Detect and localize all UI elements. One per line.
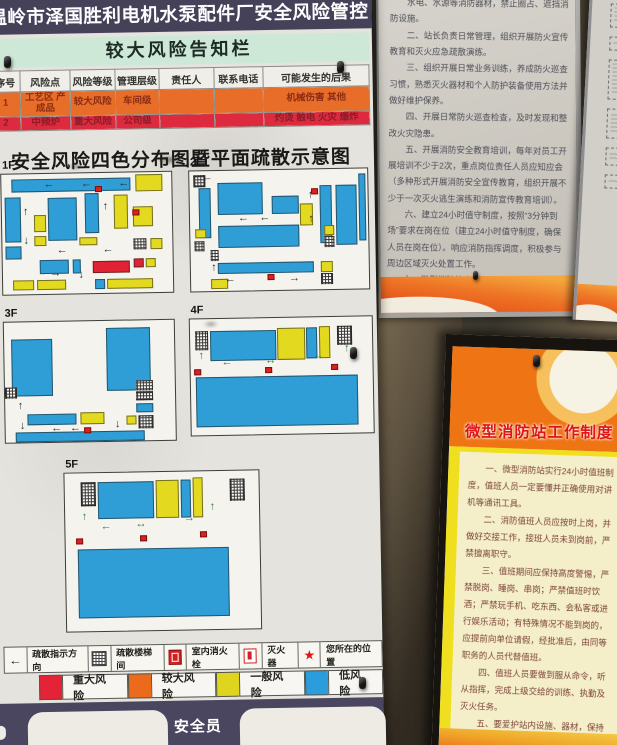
floor-label: 3F (5, 305, 175, 320)
floor-plan-area: ↑←←↓↓ (3, 319, 177, 444)
general-risk-area (150, 238, 162, 249)
evacuation-arrow: ← (100, 521, 111, 532)
general-risk-area (80, 412, 104, 424)
table-cell (214, 113, 264, 128)
legend-icon-cell (240, 643, 263, 668)
exit-marker (84, 427, 91, 433)
column-header: 风险等级 (69, 69, 115, 91)
floor-plan-3F: 3F↑←←↓↓ (3, 305, 177, 444)
stairwell (195, 331, 208, 351)
general-risk-area (37, 279, 66, 290)
low-risk-area (98, 482, 155, 519)
document-paragraph: 三、组织开展日常业务训练，养成防火巡查习惯，熟悉灭火器材和个人防护装备使用方法并… (389, 59, 569, 110)
evacuation-arrow: ↑ (344, 344, 350, 355)
document-paragraph: 二、站长负责日常管理，组织开展防火宣传教育和灭火应急疏散演练。 (389, 27, 568, 62)
poster-paragraph: 四、值班人员要做到服从命令，听从指挥，完成上级交给的训练、执勤及灭火任务。 (460, 664, 613, 720)
table-cell: 车间级 (115, 89, 159, 115)
major-risk-area (93, 260, 131, 273)
general-risk-area (136, 174, 163, 191)
evacuation-arrow: ← (51, 423, 62, 434)
poster-paragraph: 一、微型消防站实行24小时值班制度，值班人员一定要懂并正确使用对讲机等通讯工具。 (467, 460, 617, 516)
floor-plan-area: ←↔→↑↑ (189, 315, 375, 436)
column-header: 可能发生的后果 (263, 65, 370, 88)
general-risk-area (145, 258, 155, 267)
evacuation-arrow: ↓ (115, 420, 121, 431)
push-pin (473, 271, 478, 280)
flowchart-box (609, 36, 617, 51)
dirt-smudge (156, 155, 184, 165)
low-risk-area (77, 547, 230, 619)
low-risk-area (219, 225, 299, 248)
floor-plan-area: ←←←↑↓↑←←→↓ (0, 171, 174, 296)
evacuation-arrow: ← (238, 213, 249, 224)
low-risk-area (358, 173, 366, 240)
floor-plan-5F: 5F←↔→↑↑ (63, 455, 262, 632)
table-cell: 工艺区 产成品 (21, 91, 71, 117)
flame-decoration (576, 284, 617, 324)
exit-marker (140, 536, 147, 542)
document-text: 水电、水源等消防器材，禁止圈占、遮挡消防设施。二、站长负责日常管理，组织开展防火… (377, 0, 578, 306)
exit-marker (311, 188, 318, 194)
stairs-icon (92, 651, 107, 666)
dirt-smudge (203, 320, 219, 328)
evacuation-arrow: ↑ (18, 401, 24, 412)
flowchart-box (605, 147, 617, 166)
floor-plan-1F: 1F←←←↑↓↑←←→↓ (0, 157, 174, 296)
micro-fire-station-poster: 微型消防站工作制度 一、微型消防站实行24小时值班制度，值班人员一定要懂并正确使… (431, 334, 617, 745)
evacuation-arrow: ↓ (78, 270, 84, 281)
evacuation-arrow: → (50, 268, 61, 279)
table-cell (214, 88, 264, 114)
evacuation-arrow: ← (43, 179, 54, 190)
stairwell (80, 483, 96, 507)
low-risk-area (218, 182, 263, 215)
evacuation-arrow: ↓ (20, 421, 26, 432)
stairwell (321, 273, 334, 284)
flame-decoration (380, 275, 577, 313)
risk-color-swatch (305, 670, 328, 695)
push-pin (4, 56, 11, 68)
table-cell: 机械伤害 其他 (263, 86, 370, 113)
poster-title: 温岭市泽国胜利电机水泵配件厂安全风险管控 (0, 0, 372, 35)
evacuation-arrow: ↔ (265, 355, 276, 366)
location-star-icon: ★ (303, 648, 315, 661)
low-risk-area (47, 197, 77, 241)
risk-color-swatch (128, 673, 151, 698)
evacuation-arrow: → (184, 513, 195, 524)
risk-level-label: 重大风险 (62, 674, 128, 700)
exit-marker (265, 367, 272, 373)
stairwell (133, 238, 147, 249)
risk-level-label: 低风险 (328, 669, 383, 695)
table-cell: 公司级 (116, 114, 160, 129)
floor-label: 5F (65, 455, 259, 470)
fire-station-duty-document: 水电、水源等消防器材，禁止圈占、遮挡消防设施。二、站长负责日常管理，组织开展防火… (376, 0, 583, 318)
general-risk-area (35, 236, 47, 246)
exit-marker (200, 531, 207, 537)
evacuation-arrow: ← (221, 357, 232, 368)
legend-label: 室内消火栓 (187, 644, 241, 670)
push-pin (350, 347, 357, 359)
risk-level-label: 一般风险 (239, 671, 305, 697)
micro-station-title: 微型消防站工作制度 (452, 420, 617, 444)
table-cell: 重大风险 (70, 115, 116, 130)
flowchart (584, 0, 617, 190)
table-cell: 灼烫 触电 火灾 爆炸 (263, 111, 369, 127)
risk-color-swatch (39, 675, 62, 700)
evacuation-arrow: ← (81, 178, 92, 189)
evacuation-arrow: ↑ (198, 351, 204, 362)
low-risk-area (95, 279, 105, 290)
legend-icon-cell (88, 646, 111, 671)
floor-plan-area: ←↔→↑↑ (63, 469, 262, 632)
exit-marker (133, 209, 140, 215)
low-risk-area (196, 375, 359, 428)
general-risk-area (193, 478, 203, 518)
extinguisher-icon (244, 648, 257, 663)
legend-label: 您所在的位置 (321, 641, 382, 667)
evacuation-arrow: ← (259, 213, 270, 224)
low-risk-area (136, 403, 153, 413)
legend-label: 灭火器 (262, 643, 299, 669)
evacuation-arrow: ↑ (82, 512, 88, 523)
table-cell: 较大风险 (70, 90, 116, 116)
evacuation-arrow: ← (201, 173, 212, 184)
exit-marker (331, 364, 338, 370)
notice-board-title: 较大风险告知栏 (0, 32, 369, 68)
poster-paragraph: 二、消防值班人员应按时上岗，并做好交接工作，接班人员未到岗前，严禁擅离职守。 (465, 511, 617, 567)
push-pin (359, 677, 366, 689)
risk-color-swatch (216, 672, 239, 697)
general-risk-area (34, 215, 46, 232)
evacuation-arrow: ↓ (23, 236, 29, 247)
floor-plan-area: ←←←↑↑←→↑ (188, 167, 370, 292)
name-slot (240, 706, 387, 745)
evacuation-arrow: ← (225, 274, 236, 285)
poster-body: 一、微型消防站实行24小时值班制度，值班人员一定要懂并正确使用对讲机等通讯工具。… (439, 446, 617, 745)
column-header: 责任人 (158, 68, 213, 90)
evacuation-arrow: → (312, 351, 323, 362)
evacuation-arrow: ↔ (135, 519, 146, 530)
push-pin (533, 355, 540, 367)
evacuation-arrow: ← (118, 178, 129, 189)
safety-risk-poster: 温岭市泽国胜利电机水泵配件厂安全风险管控 较大风险告知栏 序号风险点风险等级管理… (0, 0, 385, 745)
document-paragraph: 四、开展日常防火巡查检查，及时发现和整改火灾隐患。 (388, 108, 567, 143)
table-cell: 1 (0, 92, 21, 117)
low-risk-area (271, 196, 298, 214)
floor-label: 1F (2, 157, 172, 172)
general-risk-area (79, 237, 98, 246)
low-risk-area (11, 339, 53, 397)
name-slot (28, 710, 169, 745)
photo-of-safety-notice-wall: 温岭市泽国胜利电机水泵配件厂安全风险管控 较大风险告知栏 序号风险点风险等级管理… (0, 0, 617, 745)
legend-label: 疏散楼梯间 (111, 645, 165, 671)
evacuation-arrow: ↑ (23, 207, 29, 218)
general-risk-area (107, 278, 153, 290)
stairwell (210, 250, 219, 261)
legend-icon-cell: ★ (298, 642, 321, 667)
flowchart-box (606, 108, 617, 139)
low-risk-area (5, 197, 21, 243)
stairwell (229, 478, 245, 500)
evacuation-arrow: ↑ (211, 263, 217, 274)
table-cell (159, 89, 214, 115)
low-risk-area (335, 184, 357, 244)
name-slot (0, 726, 6, 740)
stairwell (138, 415, 154, 428)
poster-footer: 安全员 (0, 697, 385, 745)
document-paragraph: 五、开展消防安全教育培训，每年对员工开展培训不少于2次，重点岗位责任人员应知应会… (388, 141, 568, 208)
legend-icon-cell: ← (4, 647, 27, 672)
column-header: 序号 (0, 71, 21, 93)
flowchart-box (604, 174, 617, 189)
stairwell (5, 387, 17, 398)
evacuation-arrow: ← (70, 423, 81, 434)
document-paragraph: 六、建立24小时值守制度，按照“3分钟到场”要求在岗在位（建立24小时值守制度，… (387, 206, 567, 273)
floor-label: 4F (190, 301, 372, 316)
legend-label: 疏散指示方向 (27, 646, 89, 672)
floor-label: 2F (190, 153, 368, 168)
general-risk-area (156, 480, 180, 518)
general-risk-area (114, 194, 128, 229)
general-risk-area (126, 415, 136, 425)
document-paragraph: 水电、水源等消防器材，禁止圈占、遮挡消防设施。 (390, 0, 569, 29)
stairwell (136, 391, 153, 401)
general-risk-area (321, 261, 334, 272)
floor-plan-2F: 2F←←←↑↑←→↑ (188, 153, 370, 292)
arrow-left-icon: ← (9, 652, 22, 667)
poster-paragraph: 三、值班期间应保持高度警惕，严禁脱岗、睡岗、串岗；严禁值班时饮酒；严禁玩手机、吃… (462, 562, 616, 669)
safety-officer-label: 安全员 (174, 715, 222, 737)
low-risk-area (11, 177, 130, 192)
flowchart-box (607, 59, 617, 100)
push-pin (337, 61, 344, 73)
exit-marker (76, 538, 83, 544)
column-header: 联系电话 (213, 67, 263, 89)
table-cell: 2 (0, 117, 21, 131)
table-cell (159, 113, 214, 128)
evacuation-arrow: ↑ (103, 201, 109, 212)
evacuation-arrow: ← (102, 244, 113, 255)
general-risk-area (324, 225, 335, 235)
low-risk-area (85, 193, 99, 233)
general-risk-area (277, 328, 305, 360)
risk-color-legend: 重大风险较大风险一般风险低风险 (39, 669, 383, 700)
hydrant-icon (168, 650, 181, 665)
evacuation-arrow: ↑ (308, 214, 314, 225)
exit-marker (268, 274, 275, 280)
low-risk-area (6, 246, 22, 259)
table-cell: 中频炉 (21, 116, 71, 131)
major-risk-area (134, 259, 144, 268)
stairwell (194, 241, 205, 252)
exit-marker (95, 186, 102, 192)
column-header: 管理层级 (115, 68, 159, 90)
stairwell (324, 236, 335, 247)
dirt-smudge (68, 162, 82, 170)
risk-level-label: 较大风险 (151, 672, 217, 698)
column-header: 风险点 (20, 70, 70, 92)
evacuation-arrow: ← (56, 245, 67, 256)
legend-icon-cell (164, 645, 187, 670)
risk-table: 序号风险点风险等级管理层级责任人联系电话可能发生的后果 1工艺区 产成品较大风险… (0, 64, 370, 131)
stairwell (136, 380, 153, 390)
evacuation-arrow: ↑ (210, 502, 216, 513)
general-risk-area (195, 229, 206, 239)
exit-marker (194, 370, 201, 376)
general-risk-area (13, 280, 34, 291)
evacuation-arrow: → (289, 273, 300, 284)
flowchart-box (610, 3, 617, 28)
